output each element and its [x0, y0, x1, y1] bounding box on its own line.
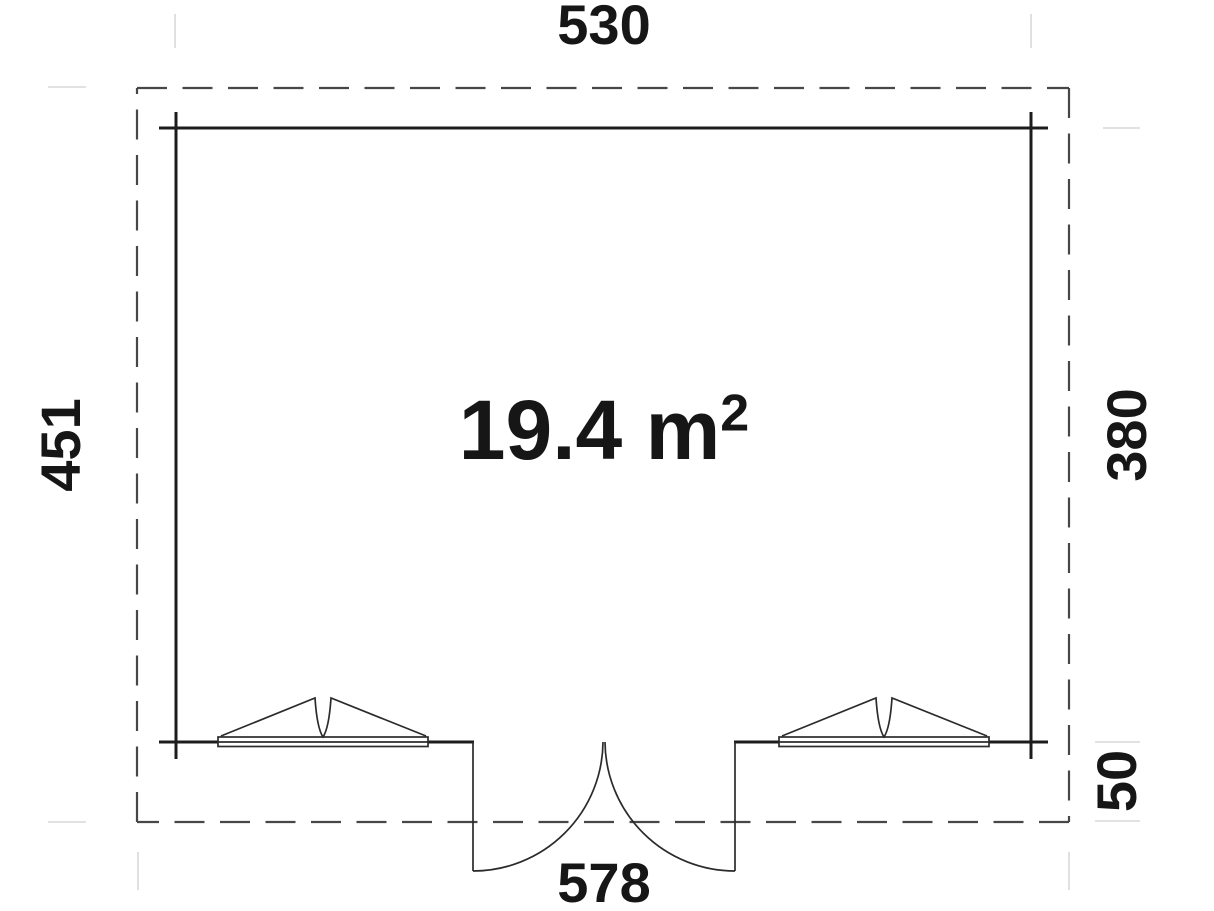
left-window [218, 698, 428, 747]
dimension-depth-right: 380 [1099, 388, 1155, 481]
right-window [779, 698, 989, 747]
area-superscript: 2 [720, 384, 749, 442]
dimension-width-top: 530 [557, 0, 650, 53]
floor-plan: 530 451 380 50 578 19.4 m2 [0, 0, 1214, 911]
window-flaps [782, 698, 987, 737]
area-value: 19.4 m [459, 383, 721, 477]
window-flaps [221, 698, 426, 737]
dimension-width-bottom: 578 [557, 855, 650, 911]
dimension-overhang-right: 50 [1089, 750, 1145, 812]
dimension-depth-left: 451 [33, 398, 89, 491]
area-label: 19.4 m2 [459, 388, 749, 472]
